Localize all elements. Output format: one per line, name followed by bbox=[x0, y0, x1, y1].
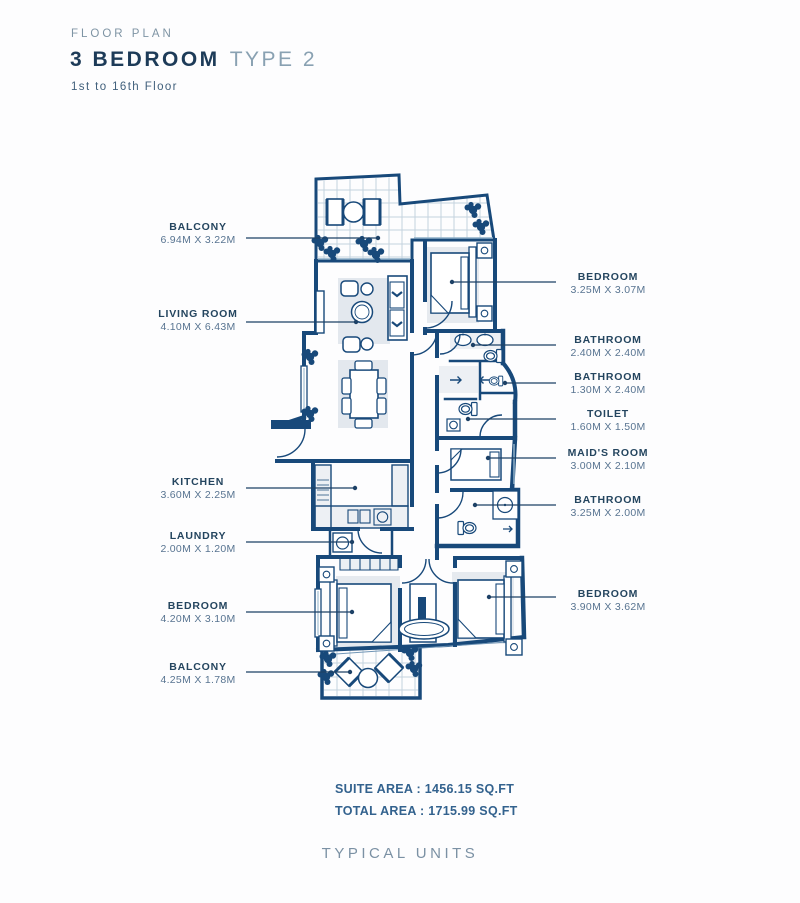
room-name: BALCONY bbox=[148, 221, 248, 234]
room-name: KITCHEN bbox=[148, 476, 248, 489]
room-name: LIVING ROOM bbox=[148, 308, 248, 321]
room-name: MAID'S ROOM bbox=[558, 447, 658, 460]
label-bedroom-bottom-left: BEDROOM 4.20M X 3.10M bbox=[148, 600, 248, 626]
balcony-top-chair-right bbox=[364, 199, 380, 225]
floor-plan-page: FLOOR PLAN 3 BEDROOMTYPE 2 1st to 16th F… bbox=[0, 0, 800, 903]
room-name: LAUNDRY bbox=[148, 530, 248, 543]
label-bedroom-bottom-right: BEDROOM 3.90M X 3.62M bbox=[558, 588, 658, 614]
balcony-top-table bbox=[344, 202, 364, 222]
label-bedroom-top-right: BEDROOM 3.25M X 3.07M bbox=[558, 271, 658, 297]
room-dims: 2.40M X 2.40M bbox=[558, 347, 658, 360]
room-dims: 3.25M X 2.00M bbox=[558, 507, 658, 520]
label-balcony-bottom: BALCONY 4.25M X 1.78M bbox=[148, 661, 248, 687]
room-name: BEDROOM bbox=[558, 271, 658, 284]
room-name: TOILET bbox=[558, 408, 658, 421]
balcony-bottom-chair-right bbox=[375, 654, 403, 682]
room-dims: 3.60M X 2.25M bbox=[148, 489, 248, 502]
room-name: BEDROOM bbox=[148, 600, 248, 613]
room-dims: 4.20M X 3.10M bbox=[148, 613, 248, 626]
room-dims: 4.10M X 6.43M bbox=[148, 321, 248, 334]
area-summary: SUITE AREA : 1456.15 SQ.FT TOTAL AREA : … bbox=[335, 778, 518, 822]
label-kitchen: KITCHEN 3.60M X 2.25M bbox=[148, 476, 248, 502]
sofa bbox=[388, 276, 407, 340]
label-laundry: LAUNDRY 2.00M X 1.20M bbox=[148, 530, 248, 556]
tv-unit bbox=[316, 291, 324, 333]
room-dims: 3.25M X 3.07M bbox=[558, 284, 658, 297]
suite-area: SUITE AREA : 1456.15 SQ.FT bbox=[335, 778, 518, 800]
coffee-table bbox=[352, 302, 373, 323]
label-toilet: TOILET 1.60M X 1.50M bbox=[558, 408, 658, 434]
dresser-column bbox=[399, 584, 449, 642]
room-name: BATHROOM bbox=[558, 494, 658, 507]
furniture bbox=[315, 199, 522, 688]
room-dims: 1.60M X 1.50M bbox=[558, 421, 658, 434]
balcony-top-chair-left bbox=[327, 199, 343, 225]
balcony-bottom-table bbox=[359, 669, 378, 688]
label-bathroom-1: BATHROOM 2.40M X 2.40M bbox=[558, 334, 658, 360]
room-name: BATHROOM bbox=[558, 334, 658, 347]
floor-plan-drawing bbox=[0, 0, 800, 903]
label-living-room: LIVING ROOM 4.10M X 6.43M bbox=[148, 308, 248, 334]
room-dims: 3.00M X 2.10M bbox=[558, 460, 658, 473]
label-bathroom-2: BATHROOM 1.30M X 2.40M bbox=[558, 371, 658, 397]
armchair-top bbox=[341, 281, 373, 296]
room-dims: 6.94M X 3.22M bbox=[148, 234, 248, 247]
room-name: BEDROOM bbox=[558, 588, 658, 601]
room-dims: 3.90M X 3.62M bbox=[558, 601, 658, 614]
room-dims: 2.00M X 1.20M bbox=[148, 543, 248, 556]
room-dims: 1.30M X 2.40M bbox=[558, 384, 658, 397]
typical-units-label: TYPICAL UNITS bbox=[0, 845, 800, 862]
room-name: BATHROOM bbox=[558, 371, 658, 384]
room-name: BALCONY bbox=[148, 661, 248, 674]
label-balcony-top: BALCONY 6.94M X 3.22M bbox=[148, 221, 248, 247]
label-bathroom-3: BATHROOM 3.25M X 2.00M bbox=[558, 494, 658, 520]
total-area: TOTAL AREA : 1715.99 SQ.FT bbox=[335, 800, 518, 822]
maids-bed bbox=[451, 449, 501, 480]
room-dims: 4.25M X 1.78M bbox=[148, 674, 248, 687]
label-maids-room: MAID'S ROOM 3.00M X 2.10M bbox=[558, 447, 658, 473]
armchair-bottom bbox=[343, 337, 373, 352]
bathroom3-arrow bbox=[503, 526, 512, 532]
toilet-room-basin bbox=[447, 419, 460, 431]
